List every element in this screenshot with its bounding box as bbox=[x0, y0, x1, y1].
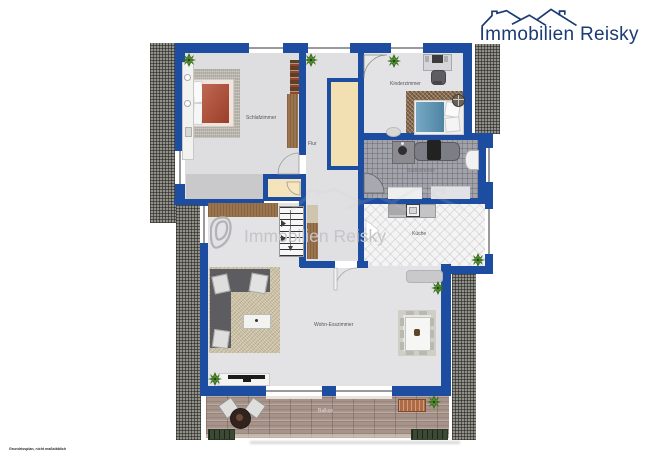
svg-text:Immobilien Reisky: Immobilien Reisky bbox=[244, 226, 386, 246]
svg-text:Grundrissplan, nicht maßstäbli: Grundrissplan, nicht maßstäblich bbox=[9, 447, 66, 451]
svg-text:Immobilien Reisky: Immobilien Reisky bbox=[480, 24, 639, 45]
